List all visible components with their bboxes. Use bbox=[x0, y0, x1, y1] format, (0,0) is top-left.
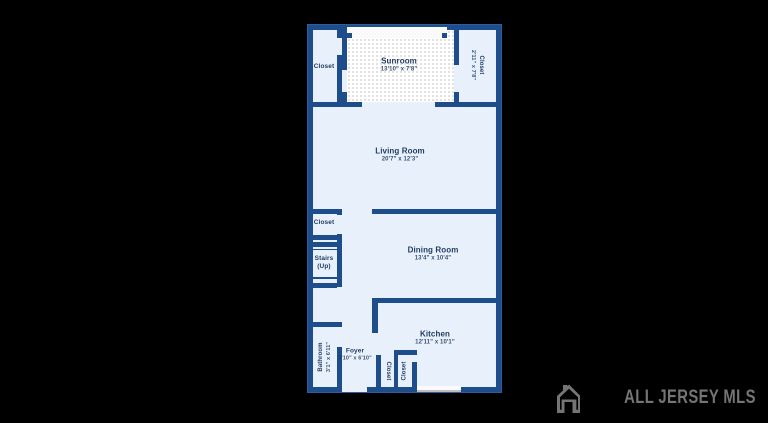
wall-segment bbox=[337, 209, 342, 215]
wall-segment bbox=[372, 209, 501, 214]
room-dims: 13'10" x 7'8" bbox=[381, 66, 418, 74]
house-logo-icon bbox=[555, 383, 582, 413]
wall-segment bbox=[337, 242, 342, 287]
room-label-foyer: Foyer 3'10" x 6'10" bbox=[338, 348, 372, 363]
room-dims: 2'11" x 7'8" bbox=[470, 50, 477, 80]
room-label-sunroom: Sunroom 13'10" x 7'8" bbox=[381, 56, 418, 74]
room-name: Dining Room bbox=[408, 245, 459, 255]
wall-segment bbox=[342, 30, 347, 70]
room-name: Kitchen bbox=[415, 329, 455, 339]
room-label-closet-top-left: Closet bbox=[314, 63, 334, 71]
room-dims: 3'10" x 6'10" bbox=[338, 356, 372, 363]
wall-segment bbox=[394, 350, 398, 387]
wall-segment bbox=[342, 92, 347, 102]
room-dims: 13'4" x 10'4" bbox=[408, 255, 459, 263]
stair-tread bbox=[313, 249, 337, 251]
wall-segment bbox=[454, 30, 459, 65]
wall-segment bbox=[308, 102, 362, 107]
room-label-stairs: Stairs (Up) bbox=[315, 255, 334, 271]
room-label-kitchen: Kitchen 12'11" x 10'1" bbox=[415, 329, 455, 347]
room-name: Closet bbox=[383, 362, 391, 381]
wall-segment bbox=[372, 298, 378, 333]
room-name: Foyer bbox=[338, 348, 372, 356]
wall-segment bbox=[337, 234, 342, 242]
room-name: Closet bbox=[477, 50, 485, 80]
room-label-closet-top-right: Closet 2'11" x 7'8" bbox=[470, 50, 484, 80]
wall-segment bbox=[367, 387, 417, 392]
wall-segment bbox=[308, 322, 342, 327]
wall-segment bbox=[376, 355, 381, 387]
room-label-closet-bottom-right: Closet bbox=[401, 362, 409, 381]
wall-segment bbox=[398, 350, 417, 355]
room-dims: (Up) bbox=[315, 263, 334, 271]
room-name: Closet bbox=[314, 63, 334, 71]
wall-segment bbox=[308, 387, 342, 392]
room-label-bathroom: Bathroom 3'1" x 6'11" bbox=[318, 342, 332, 372]
room-dims: 3'1" x 6'11" bbox=[325, 342, 332, 372]
room-label-dining-room: Dining Room 13'4" x 10'4" bbox=[408, 245, 459, 263]
room-name: Closet bbox=[314, 219, 334, 227]
front-door-opening bbox=[342, 387, 367, 392]
window-post bbox=[442, 33, 447, 38]
wall-segment bbox=[313, 242, 337, 247]
watermark-text: ALL JERSEY MLS bbox=[624, 387, 756, 409]
window-post bbox=[347, 33, 352, 38]
room-name: Living Room bbox=[375, 146, 425, 156]
sunroom-window bbox=[347, 27, 447, 38]
room-name: Bathroom bbox=[318, 342, 326, 372]
room-dims: 12'11" x 10'1" bbox=[415, 339, 455, 347]
room-name: Closet bbox=[401, 362, 409, 381]
room-label-closet-middle-left: Closet bbox=[314, 219, 334, 227]
wall-segment bbox=[313, 235, 337, 240]
wall-segment bbox=[454, 92, 459, 102]
room-dims: 20'7" x 12'3" bbox=[375, 156, 425, 164]
wall-segment bbox=[435, 102, 501, 107]
stair-tread bbox=[313, 277, 337, 279]
wall-segment bbox=[313, 283, 337, 288]
room-name: Sunroom bbox=[381, 56, 418, 66]
kitchen-window-sill bbox=[417, 390, 461, 392]
watermark: ALL JERSEY MLS bbox=[555, 383, 756, 413]
floor-plan: Closet Sunroom 13'10" x 7'8" Closet 2'11… bbox=[308, 25, 501, 392]
wall-segment bbox=[412, 362, 417, 387]
room-label-closet-bottom-left: Closet bbox=[383, 362, 391, 381]
wall-segment bbox=[308, 209, 340, 214]
room-name: Stairs bbox=[315, 255, 334, 263]
wall-segment bbox=[372, 298, 501, 303]
room-label-living-room: Living Room 20'7" x 12'3" bbox=[375, 146, 425, 164]
wall-segment bbox=[461, 387, 501, 392]
